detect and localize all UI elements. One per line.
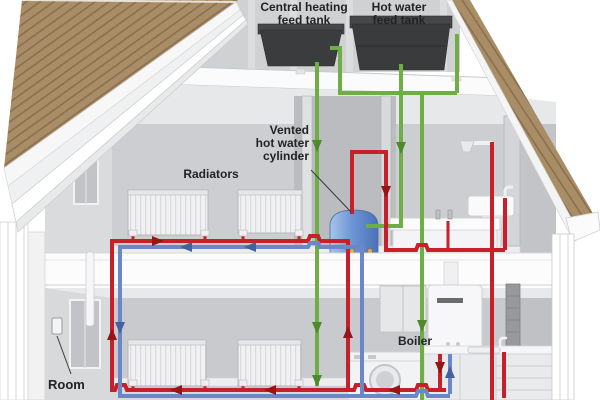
bath-tap-cold: [436, 210, 440, 219]
central-heating-feed-tank: [258, 24, 344, 66]
radiator-valve: [295, 230, 303, 236]
room-thermostat: [52, 318, 62, 334]
label-vented-hot-water-cylinder: Ventedhot watercylinder: [227, 124, 309, 163]
label-boiler: Boiler: [392, 335, 438, 348]
kitchen-sink: [468, 347, 500, 353]
radiator-valve: [129, 230, 137, 236]
radiator-valve: [295, 380, 303, 386]
bath-tap-hot: [448, 210, 452, 219]
house-heating-diagram: Central heatingfeed tank Hot waterfeed t…: [0, 0, 600, 400]
radiator-valve: [201, 380, 209, 386]
radiator-4: [238, 340, 301, 386]
label-hot-water-feed-tank: Hot waterfeed tank: [344, 1, 454, 27]
radiator-1: [128, 190, 208, 235]
diagram-canvas: [0, 0, 600, 400]
tall-unit: [506, 284, 520, 346]
radiator-2: [238, 190, 302, 233]
radiator-valve: [239, 230, 247, 236]
right-wall-section: [552, 234, 574, 400]
radiator-valve: [201, 230, 209, 236]
boiler-flue: [444, 262, 458, 285]
label-radiators: Radiators: [171, 168, 251, 181]
label-room: Room: [48, 378, 108, 391]
downpipe: [86, 252, 94, 326]
radiator-valve: [239, 380, 247, 386]
bathtub-rim: [390, 218, 500, 230]
washing-machine: [348, 352, 422, 400]
radiator-valve: [129, 380, 137, 386]
radiator-3: [128, 340, 206, 386]
